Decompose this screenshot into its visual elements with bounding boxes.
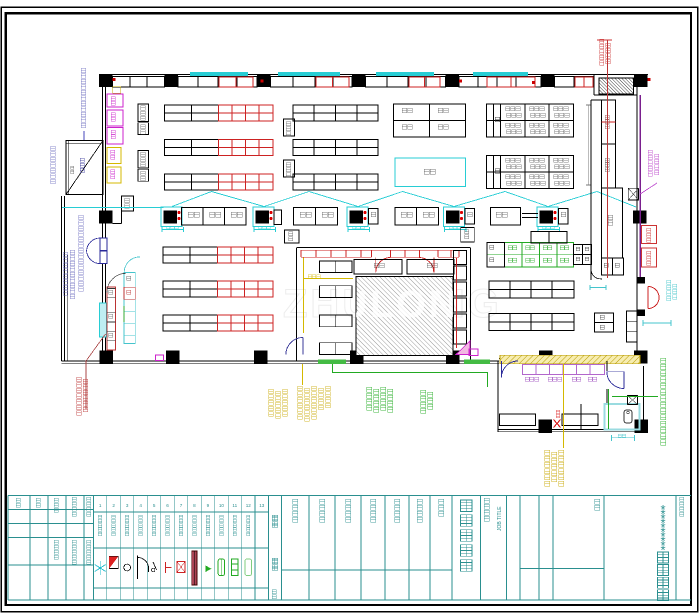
svg-text:9: 9 (207, 503, 210, 508)
svg-text:3: 3 (126, 503, 129, 508)
svg-text:13: 13 (259, 503, 265, 508)
svg-text:1: 1 (99, 503, 102, 508)
svg-text:7: 7 (180, 503, 183, 508)
svg-text:10: 10 (219, 503, 225, 508)
svg-text:4: 4 (139, 503, 142, 508)
svg-text:2: 2 (112, 503, 115, 508)
svg-text:12: 12 (246, 503, 252, 508)
svg-text:JOB TITLE: JOB TITLE (497, 506, 503, 531)
svg-text:8: 8 (193, 503, 196, 508)
svg-text:6: 6 (166, 503, 169, 508)
svg-text:11: 11 (232, 503, 237, 508)
svg-text:5: 5 (153, 503, 156, 508)
